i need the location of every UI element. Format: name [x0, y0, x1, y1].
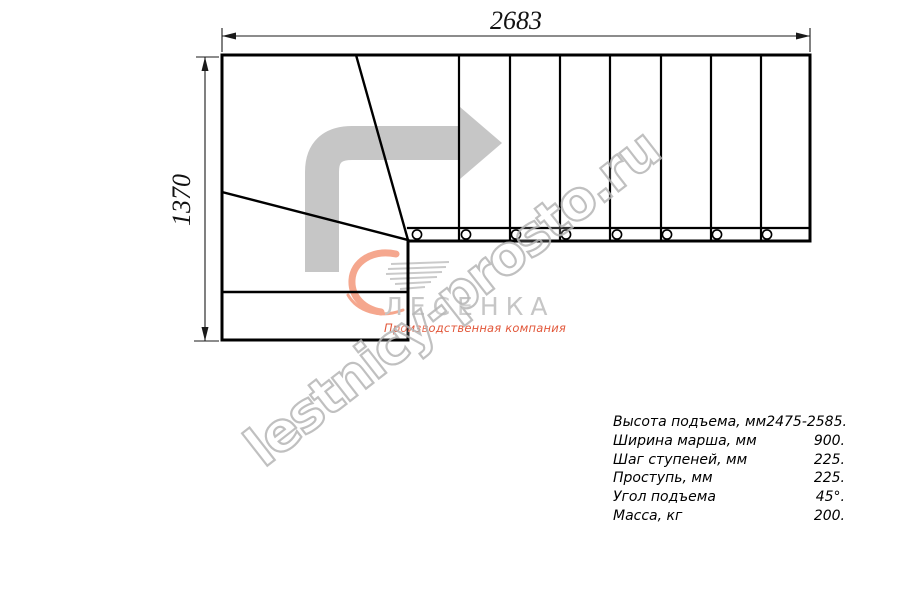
staircase-drawing-page: 2683 1370 ЛЕСЕНКА Производственная компа…	[0, 0, 900, 600]
specs-table: Высота подъема, мм 2475-2585. Ширина мар…	[613, 413, 845, 526]
spec-label: Масса, кг	[613, 507, 682, 526]
spec-row: Угол подъема 45°.	[613, 488, 845, 507]
spec-label: Угол подъема	[613, 488, 716, 507]
baluster-circles	[412, 230, 771, 239]
spec-value: 2475-2585.	[766, 413, 847, 432]
spec-row: Шаг ступеней, мм 225.	[613, 451, 845, 470]
spec-row: Ширина марша, мм 900.	[613, 432, 845, 451]
spec-row: Масса, кг 200.	[613, 507, 845, 526]
spec-value: 900.	[814, 432, 845, 451]
spec-value: 225.	[814, 469, 845, 488]
spec-row: Проступь, мм 225.	[613, 469, 845, 488]
spec-value: 225.	[814, 451, 845, 470]
spec-value: 200.	[814, 507, 845, 526]
spec-label: Ширина марша, мм	[613, 432, 757, 451]
spec-row: Высота подъема, мм 2475-2585.	[613, 413, 845, 432]
spec-value: 45°.	[816, 488, 845, 507]
dimension-height-label: 1370	[167, 174, 197, 226]
spec-label: Высота подъема, мм	[613, 413, 766, 432]
dimension-width-label: 2683	[490, 6, 542, 36]
spec-label: Проступь, мм	[613, 469, 713, 488]
spec-label: Шаг ступеней, мм	[613, 451, 747, 470]
